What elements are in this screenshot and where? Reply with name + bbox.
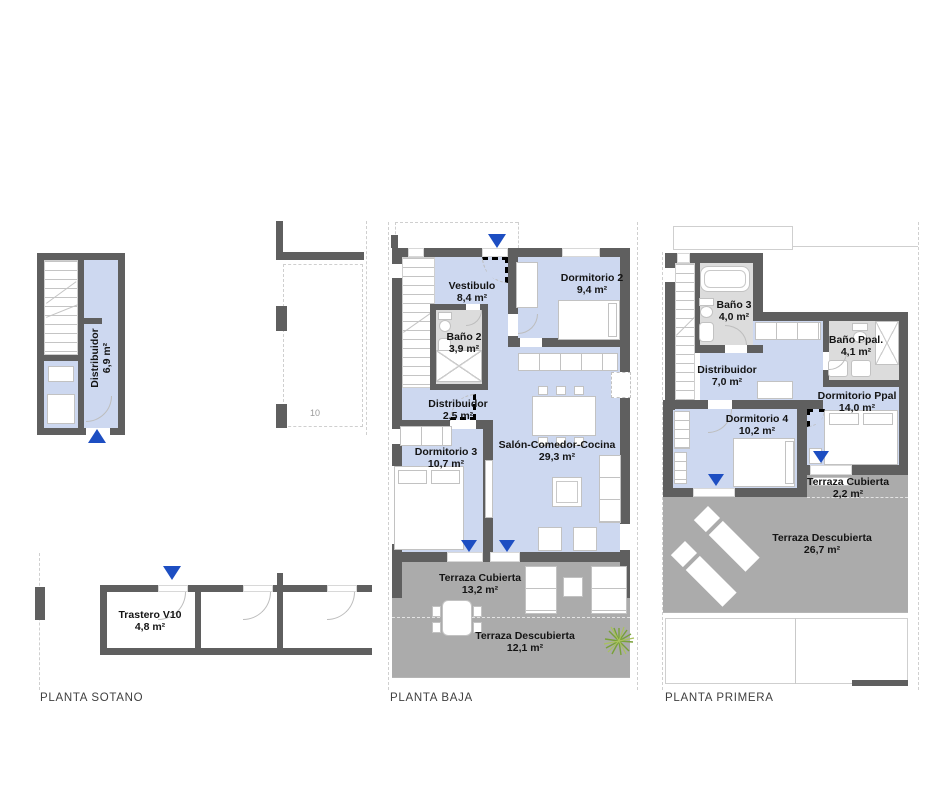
chair (432, 622, 441, 633)
door-opening (520, 338, 542, 347)
armchair (538, 527, 562, 551)
wall (899, 312, 908, 475)
terrace-door-opening (693, 488, 735, 497)
property-line (518, 222, 519, 248)
room-name: Dormitorio Ppal (818, 390, 897, 402)
chair (574, 386, 584, 395)
wall (78, 355, 84, 435)
toilet (438, 312, 452, 320)
room-label-dormitorio2: Dormitorio 2 9,4 m² (561, 272, 623, 296)
wall (84, 318, 102, 324)
coffee-table (552, 477, 582, 507)
room-label-terraza-cubierta-primera: Terraza Cubierta 2,2 m² (807, 476, 889, 500)
room-area: 29,3 m² (499, 451, 616, 463)
room-name: Distribuidor (89, 328, 101, 388)
window (562, 248, 600, 257)
window (665, 268, 675, 282)
entrance-arrow-baja (488, 234, 506, 248)
wardrobe (516, 262, 538, 308)
property-line (388, 222, 389, 690)
room-label-trastero: Trastero V10 4,8 m² (118, 609, 181, 633)
wall (276, 404, 287, 428)
room-label-dormitorio4: Dormitorio 4 10,2 m² (726, 413, 788, 437)
room-label-dormitorio-ppal: Dormitorio Ppal 14,0 m² (818, 390, 897, 414)
property-line (395, 222, 518, 223)
neighbor-number: 10 (310, 408, 320, 418)
room-name: Distribuidor (428, 398, 488, 410)
toilet (852, 323, 868, 331)
room-label-dormitorio3: Dormitorio 3 10,7 m² (415, 446, 477, 470)
terrace-door-opening (490, 552, 520, 562)
room-name: Terraza Cubierta (439, 572, 521, 584)
room-label-bano2: Baño 2 3,9 m² (446, 331, 481, 355)
wall (100, 585, 107, 655)
door-swing (243, 592, 271, 620)
wall (392, 562, 402, 598)
room-name: Terraza Cubierta (807, 476, 889, 488)
wall (663, 400, 673, 497)
wall (35, 587, 45, 620)
room-label-distribuidor-primera: Distribuidor 7,0 m² (697, 364, 757, 388)
wardrobe (400, 426, 452, 446)
room-area: 4,0 m² (716, 311, 751, 323)
neighbor-outline (665, 618, 908, 684)
room-label-bano-ppal: Baño Ppal. 4,1 m² (829, 334, 883, 358)
door-arrow (461, 540, 477, 552)
wall (276, 306, 287, 331)
floorplan-sheet: Distribuidor 6,9 m² 10 Trastero V10 4,8 … (0, 0, 935, 796)
neighbor-unit-outline (283, 264, 363, 427)
coffee-table-top (556, 481, 578, 503)
sofa (599, 455, 621, 523)
door-opening (158, 585, 188, 592)
bathtub-basin (704, 270, 746, 288)
sink (851, 360, 871, 377)
door-swing (327, 592, 355, 620)
room-area: 26,7 m² (772, 544, 872, 556)
room-name: Terraza Descubierta (475, 630, 575, 642)
toilet (700, 306, 713, 318)
wall (797, 409, 807, 497)
property-line (637, 222, 638, 690)
wall (430, 384, 488, 390)
dining-table (532, 396, 596, 436)
wardrobe (755, 322, 821, 340)
wall (100, 648, 372, 655)
wall (78, 260, 84, 355)
wall (732, 400, 823, 409)
room-label-terraza-cubierta-baja: Terraza Cubierta 13,2 m² (439, 572, 521, 596)
door-opening (243, 585, 273, 592)
door-opening (708, 400, 732, 409)
wall (823, 380, 899, 387)
room-area: 2,2 m² (807, 488, 889, 500)
room-name: Terraza Descubierta (772, 532, 872, 544)
terrace-door-opening (810, 465, 852, 475)
wall (276, 252, 364, 260)
bed-pillow (431, 470, 460, 484)
property-line (39, 553, 40, 690)
room-area: 3,9 m² (446, 343, 481, 355)
chair (556, 386, 566, 395)
outdoor-sofa (525, 566, 557, 614)
room-label-vestibulo: Vestibulo 8,4 m² (449, 280, 496, 304)
door-opening (508, 314, 518, 336)
sink (699, 322, 714, 342)
room-label-terraza-descubierta-baja: Terraza Descubierta 12,1 m² (475, 630, 575, 654)
outdoor-dining-table (442, 600, 472, 636)
wall (118, 253, 125, 435)
bed-pillow (829, 413, 859, 425)
plan-title-baja: PLANTA BAJA (390, 692, 473, 704)
room-name: Dormitorio 3 (415, 446, 477, 458)
wardrobe (757, 381, 793, 399)
entrance-door-opening (482, 248, 508, 257)
room-area: 7,0 m² (697, 376, 757, 388)
terrace-door-opening (447, 552, 483, 562)
room-label-terraza-descubierta-primera: Terraza Descubierta 26,7 m² (772, 532, 872, 556)
room-name: Vestibulo (449, 280, 496, 292)
bed-pillow (398, 470, 427, 484)
wall (277, 573, 283, 652)
bed-pillow (785, 441, 794, 484)
plant-icon (602, 624, 636, 658)
room-area: 4,1 m² (829, 346, 883, 358)
room-label-distribuidor-baja: Distribuidor 2,5 m² (428, 398, 488, 422)
chair (473, 606, 482, 617)
room-name: Dormitorio 2 (561, 272, 623, 284)
plan-title-primera: PLANTA PRIMERA (665, 692, 774, 704)
room-name: Baño Ppal. (829, 334, 883, 346)
room-name: Trastero V10 (118, 609, 181, 621)
entrance-arrow-sotano (88, 429, 106, 443)
toilet (699, 298, 714, 306)
property-line (918, 222, 919, 690)
room-name: Baño 3 (716, 299, 751, 311)
kitchen-counter (518, 353, 618, 371)
room-name: Baño 2 (446, 331, 481, 343)
door-arrow (499, 540, 515, 552)
plan-title-sotano: PLANTA SOTANO (40, 692, 143, 704)
window (408, 248, 424, 257)
sliding-door (485, 460, 493, 518)
wall (424, 248, 482, 257)
staircase-sotano (44, 260, 78, 355)
door-opening (327, 585, 357, 592)
bed-pillow (863, 413, 893, 425)
room-area: 10,7 m² (415, 458, 477, 470)
window (677, 253, 690, 263)
room-area: 4,8 m² (118, 621, 181, 633)
bed-pillow (608, 303, 617, 337)
room-area: 13,2 m² (439, 584, 521, 596)
room-label-salon: Salón-Comedor-Cocina 29,3 m² (499, 439, 616, 463)
room-name: Distribuidor (697, 364, 757, 376)
outdoor-table (563, 577, 583, 597)
door-arrow (708, 474, 724, 486)
door-arrow (813, 451, 829, 463)
room-label-distribuidor-sotano: Distribuidor 6,9 m² (89, 328, 113, 388)
wall (391, 235, 398, 248)
room-area: 2,5 m² (428, 410, 488, 422)
entrance-arrow-trastero (163, 566, 181, 580)
wall (663, 488, 807, 497)
appliance (48, 366, 74, 382)
room-area: 14,0 m² (818, 402, 897, 414)
door-opening (725, 345, 747, 353)
wall (482, 304, 488, 390)
property-line (366, 221, 367, 435)
room-area: 6,9 m² (101, 328, 113, 388)
appliance (47, 394, 75, 424)
window (620, 524, 630, 550)
terrace-divider-line (392, 617, 630, 618)
room-name: Salón-Comedor-Cocina (499, 439, 616, 451)
closet-shelves (674, 411, 690, 449)
outdoor-sofa (591, 566, 627, 614)
room-area: 9,4 m² (561, 284, 623, 296)
room-label-bano3: Baño 3 4,0 m² (716, 299, 751, 323)
bathtub (700, 266, 750, 292)
room-area: 8,4 m² (449, 292, 496, 304)
room-area: 12,1 m² (475, 642, 575, 654)
wall (37, 253, 44, 435)
room-area: 10,2 m² (726, 425, 788, 437)
window (392, 264, 402, 278)
room-name: Dormitorio 4 (726, 413, 788, 425)
fridge (611, 372, 631, 398)
closet-shelves (674, 452, 687, 484)
wall (195, 592, 201, 648)
armchair (573, 527, 597, 551)
wall (852, 680, 908, 686)
neighbor-roof-line (793, 246, 918, 247)
chair (538, 386, 548, 395)
wall (37, 253, 125, 260)
chair (432, 606, 441, 617)
wall (690, 253, 760, 263)
neighbor-divider-line (795, 618, 796, 684)
wall (753, 253, 763, 321)
wall (753, 312, 908, 321)
neighbor-outline (673, 226, 793, 250)
